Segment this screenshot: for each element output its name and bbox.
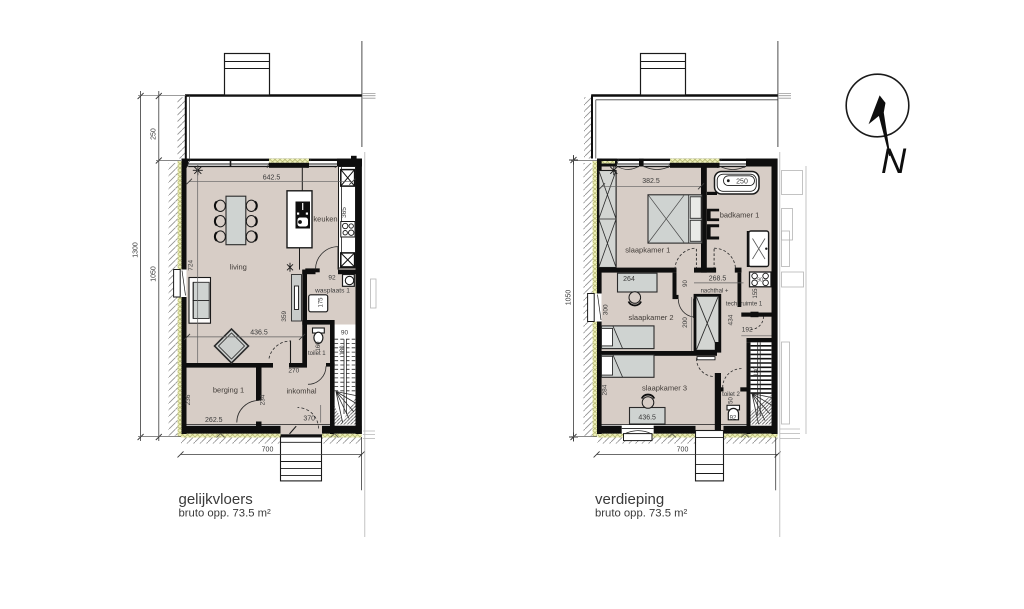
- svg-text:382.5: 382.5: [642, 178, 660, 185]
- svg-text:264: 264: [623, 276, 635, 283]
- svg-text:90: 90: [683, 280, 689, 287]
- svg-text:436.5: 436.5: [638, 415, 656, 422]
- svg-text:bruto opp. 73.5 m²: bruto opp. 73.5 m²: [595, 508, 688, 520]
- svg-text:175: 175: [318, 297, 324, 308]
- svg-text:1050: 1050: [151, 266, 158, 282]
- svg-text:slaapkamer 2: slaapkamer 2: [628, 313, 673, 322]
- svg-text:toilet 2: toilet 2: [722, 392, 740, 398]
- svg-text:268.5: 268.5: [709, 275, 727, 282]
- svg-text:365: 365: [341, 207, 348, 218]
- svg-text:250: 250: [151, 128, 158, 140]
- svg-text:262.5: 262.5: [205, 417, 223, 424]
- svg-text:700: 700: [262, 446, 274, 453]
- svg-text:wasplaats 1: wasplaats 1: [314, 287, 350, 294]
- svg-text:192: 192: [742, 326, 753, 333]
- svg-text:642.5: 642.5: [263, 175, 281, 182]
- svg-text:keuken: keuken: [313, 215, 337, 224]
- svg-text:700: 700: [677, 446, 689, 453]
- svg-text:434: 434: [728, 314, 735, 325]
- svg-text:bruto opp. 73.5 m²: bruto opp. 73.5 m²: [179, 508, 272, 520]
- svg-text:slaapkamer 1: slaapkamer 1: [625, 246, 670, 255]
- svg-text:gelijkvloers: gelijkvloers: [179, 491, 253, 508]
- svg-text:1050: 1050: [565, 290, 572, 306]
- svg-text:toilet 1: toilet 1: [308, 351, 326, 357]
- svg-text:badkamer 1: badkamer 1: [720, 211, 760, 220]
- svg-text:359: 359: [281, 310, 288, 321]
- svg-text:180: 180: [340, 345, 346, 356]
- svg-text:92: 92: [328, 275, 336, 282]
- svg-text:verdieping: verdieping: [595, 491, 664, 508]
- svg-text:living: living: [230, 263, 247, 272]
- svg-text:berging 1: berging 1: [213, 385, 244, 394]
- svg-text:inkomhal: inkomhal: [286, 387, 316, 396]
- svg-text:436.5: 436.5: [250, 330, 268, 337]
- svg-text:tech. ruimte 1: tech. ruimte 1: [726, 301, 763, 307]
- svg-text:180: 180: [754, 366, 760, 377]
- svg-text:234: 234: [259, 394, 266, 405]
- svg-text:270: 270: [288, 368, 299, 375]
- svg-text:724: 724: [188, 259, 195, 270]
- svg-text:284: 284: [602, 384, 609, 395]
- svg-text:155: 155: [753, 288, 759, 299]
- svg-text:300: 300: [603, 304, 610, 315]
- svg-text:370: 370: [303, 416, 315, 423]
- svg-text:90: 90: [341, 330, 349, 337]
- svg-text:160: 160: [316, 341, 322, 352]
- svg-text:250: 250: [736, 179, 748, 186]
- svg-text:236: 236: [185, 394, 192, 405]
- svg-text:1300: 1300: [133, 242, 140, 258]
- svg-text:92: 92: [730, 415, 737, 421]
- svg-text:N: N: [881, 142, 907, 181]
- svg-text:90: 90: [757, 278, 763, 284]
- svg-text:slaapkamer 3: slaapkamer 3: [642, 384, 687, 393]
- svg-text:nachthal +: nachthal +: [701, 288, 729, 294]
- svg-text:200: 200: [682, 317, 689, 328]
